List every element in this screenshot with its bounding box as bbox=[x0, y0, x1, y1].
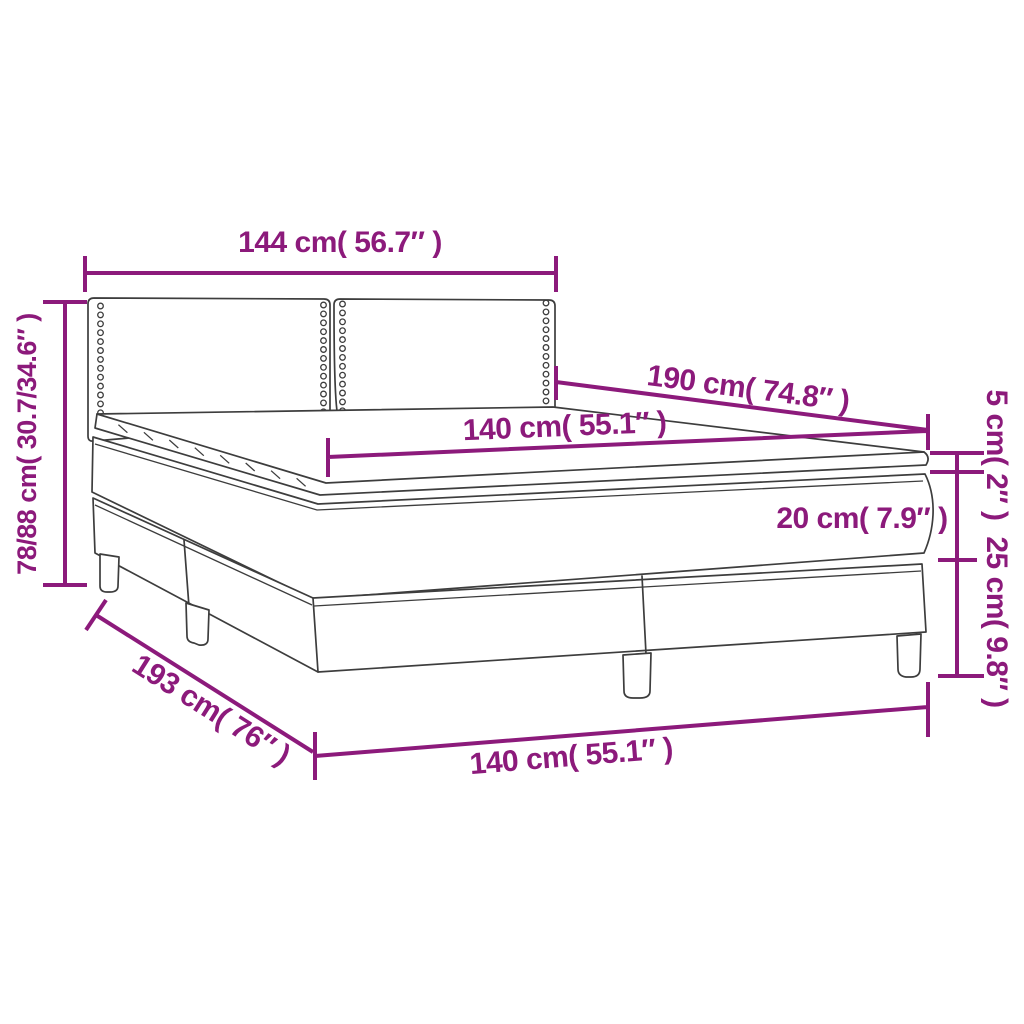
mattress-thickness-label: 20 cm( 7.9″ ) bbox=[776, 502, 947, 535]
bed-length-label: 190 cm( 74.8″ ) bbox=[645, 359, 851, 418]
bed-leg bbox=[186, 603, 209, 645]
bed-drawing bbox=[88, 298, 933, 698]
bed-leg bbox=[897, 634, 921, 677]
dimension-base-width: 140 cm( 55.1″ ) bbox=[315, 682, 928, 781]
topper-thickness-label: 5 cm( 2″ ) bbox=[980, 389, 1013, 520]
bed-leg bbox=[623, 653, 651, 698]
bed-leg bbox=[100, 554, 119, 592]
dimension-headboard-width: 144 cm( 56.7″ ) bbox=[85, 226, 556, 292]
base-height-label: 25 cm( 9.8″ ) bbox=[980, 536, 1013, 707]
headboard-height-label: 78/88 cm( 30.7/34.6″ ) bbox=[12, 313, 42, 575]
base-length-label: 193 cm( 76″ ) bbox=[126, 648, 295, 772]
dimension-headboard-height: 78/88 cm( 30.7/34.6″ ) bbox=[12, 302, 87, 585]
headboard-width-label: 144 cm( 56.7″ ) bbox=[238, 226, 442, 259]
diagram-canvas: 144 cm( 56.7″ ) 190 cm( 74.8″ ) 140 cm( … bbox=[0, 0, 1024, 1024]
bed-dimension-diagram: 144 cm( 56.7″ ) 190 cm( 74.8″ ) 140 cm( … bbox=[0, 0, 1024, 1024]
headboard-right-panel bbox=[334, 299, 555, 421]
